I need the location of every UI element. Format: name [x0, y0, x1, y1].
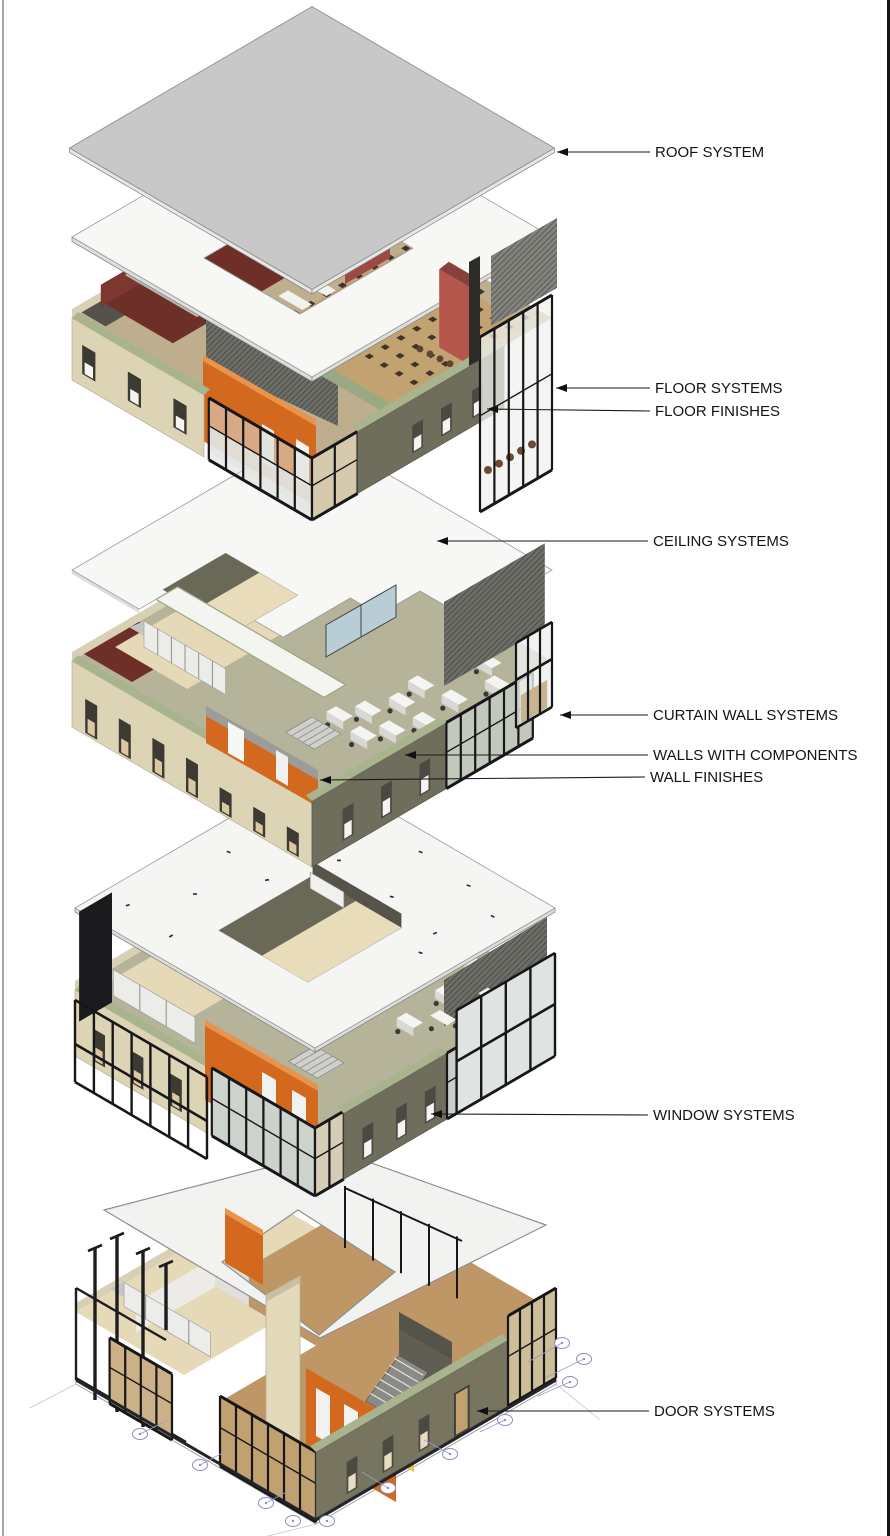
svg-text:FLOOR SYSTEMS: FLOOR SYSTEMS [655, 380, 783, 397]
svg-text:ROOF SYSTEM: ROOF SYSTEM [655, 144, 764, 161]
svg-text:FLOOR FINISHES: FLOOR FINISHES [655, 403, 780, 420]
svg-text:WALL FINISHES: WALL FINISHES [650, 769, 763, 786]
svg-text:CEILING SYSTEMS: CEILING SYSTEMS [653, 533, 789, 550]
svg-text:WINDOW SYSTEMS: WINDOW SYSTEMS [653, 1107, 795, 1124]
svg-text:DOOR SYSTEMS: DOOR SYSTEMS [654, 1403, 775, 1420]
svg-text:WALLS WITH COMPONENTS: WALLS WITH COMPONENTS [653, 747, 857, 764]
svg-text:CURTAIN WALL SYSTEMS: CURTAIN WALL SYSTEMS [653, 707, 838, 724]
